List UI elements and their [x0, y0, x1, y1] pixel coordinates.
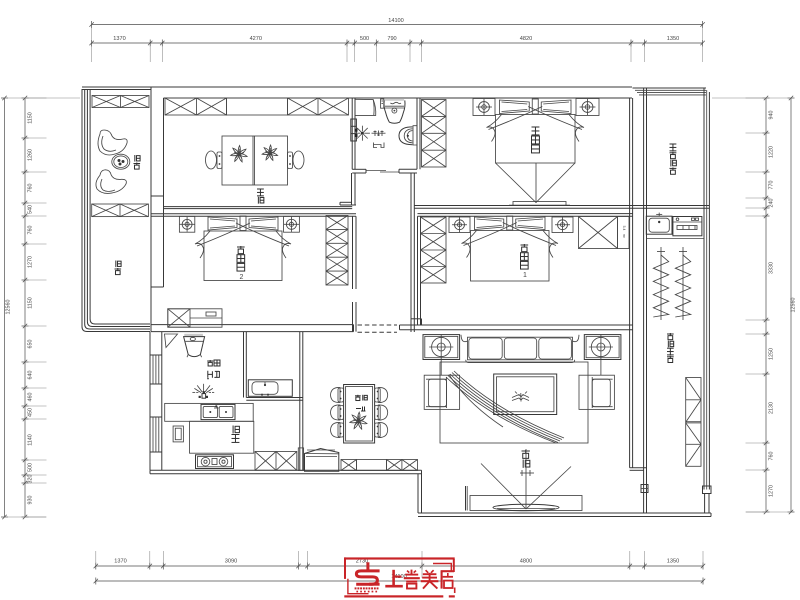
svg-text:460: 460 — [28, 393, 34, 402]
svg-text:3090: 3090 — [225, 559, 237, 565]
svg-text:1270: 1270 — [769, 485, 775, 497]
svg-text:1220: 1220 — [769, 146, 775, 158]
svg-text:940: 940 — [769, 111, 775, 120]
svg-text:1150: 1150 — [28, 112, 34, 124]
svg-text:5.4: 5.4 — [622, 226, 626, 231]
svg-text:3330: 3330 — [769, 262, 775, 274]
svg-text:640: 640 — [28, 371, 34, 380]
svg-text:1260: 1260 — [28, 149, 34, 161]
svg-text:540: 540 — [28, 205, 34, 214]
svg-text:1250: 1250 — [769, 348, 775, 360]
svg-text:1270: 1270 — [28, 256, 34, 268]
svg-text:500: 500 — [28, 463, 34, 472]
svg-text:450: 450 — [28, 408, 34, 417]
svg-text:760: 760 — [28, 226, 34, 235]
svg-text:790: 790 — [387, 36, 396, 42]
svg-text:760: 760 — [769, 452, 775, 461]
svg-text:1370: 1370 — [114, 559, 126, 565]
svg-text:2: 2 — [240, 274, 244, 281]
svg-text:1350: 1350 — [667, 36, 679, 42]
svg-text:12560: 12560 — [6, 300, 12, 315]
svg-text:12560: 12560 — [791, 298, 797, 313]
svg-text:4270: 4270 — [250, 36, 262, 42]
svg-text:760: 760 — [28, 184, 34, 193]
svg-text:1370: 1370 — [113, 36, 125, 42]
svg-text:1150: 1150 — [28, 297, 34, 309]
svg-text:770: 770 — [769, 181, 775, 190]
svg-text:4800: 4800 — [520, 559, 532, 565]
svg-text:320: 320 — [28, 475, 34, 484]
svg-text:500: 500 — [360, 36, 369, 42]
svg-text:4820: 4820 — [520, 36, 532, 42]
svg-text:1350: 1350 — [667, 559, 679, 565]
svg-text:930: 930 — [28, 496, 34, 505]
svg-text:1: 1 — [523, 272, 527, 279]
svg-text:650: 650 — [28, 340, 34, 349]
svg-text:1140: 1140 — [28, 434, 34, 446]
svg-text:240: 240 — [769, 199, 775, 208]
svg-text:14100: 14100 — [388, 18, 404, 24]
svg-text:2130: 2130 — [769, 402, 775, 414]
